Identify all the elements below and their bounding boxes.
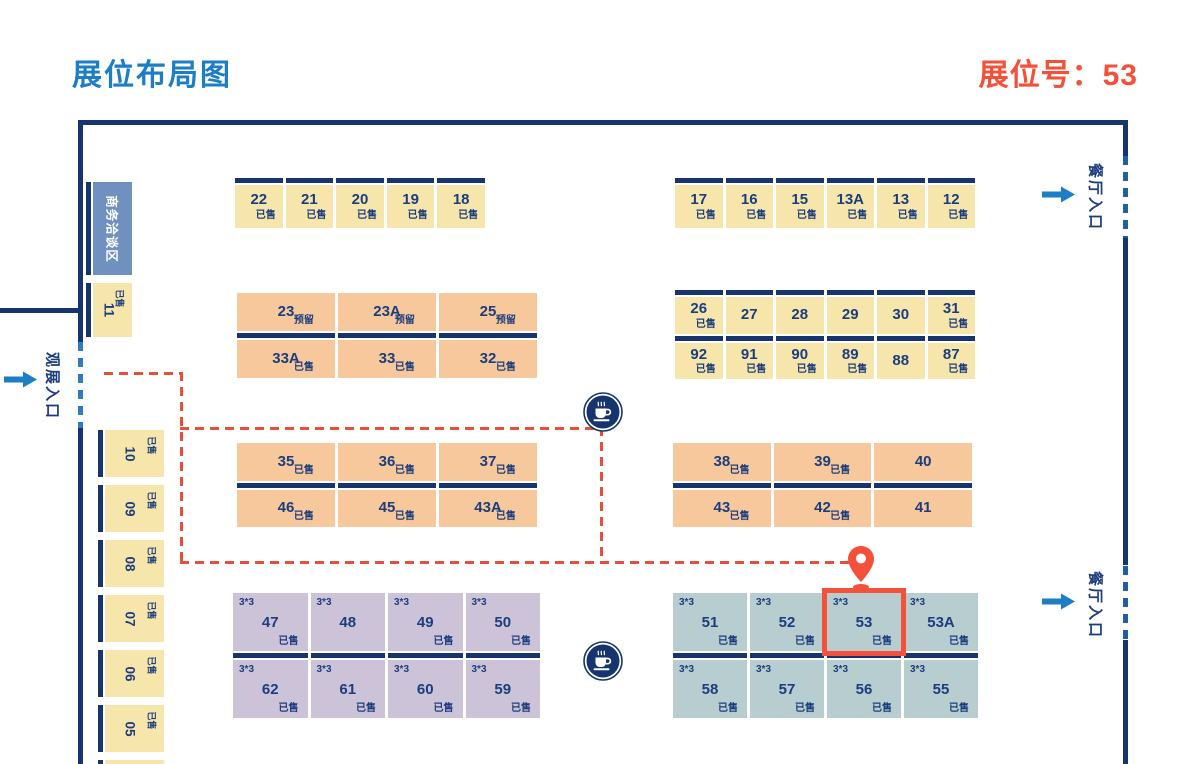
wall-segment (0, 308, 78, 313)
booth-number: 39 (814, 454, 831, 471)
booth-number: 48 (339, 615, 356, 632)
route-path-segment (600, 427, 603, 564)
booth-42[interactable]: 42已售 (774, 490, 872, 528)
booth-status: 已售 (948, 365, 968, 375)
booth-90[interactable]: 90已售 (776, 343, 824, 380)
booth-number: 09 (122, 501, 137, 516)
booth-column: 35已售46已售 (237, 443, 335, 527)
booth-number: 47 (262, 615, 279, 632)
booth-10[interactable]: 10已售 (98, 430, 164, 477)
booth-60[interactable]: 3*360已售 (388, 660, 463, 718)
booth-status: 已售 (395, 466, 415, 476)
booth-status: 已售 (718, 637, 738, 647)
booth-divider-bar (437, 178, 485, 183)
booth-status: 已售 (872, 637, 892, 647)
restaurant-entrance-top-label: 餐厅入口 (1080, 156, 1112, 238)
booth-number: 16 (741, 192, 758, 209)
booth-number: 27 (741, 307, 758, 324)
booth-30[interactable]: 30 (877, 297, 925, 334)
booth-status: 已售 (113, 289, 126, 307)
booth-status: 已售 (145, 491, 158, 509)
booth-number: 18 (453, 192, 470, 209)
booth-edge-bar (98, 485, 103, 532)
booth-49[interactable]: 3*349已售 (388, 593, 463, 651)
booth-36[interactable]: 36已售 (338, 443, 436, 481)
booth-column: 23预留33A已售 (237, 293, 335, 378)
booth-number: 40 (915, 454, 932, 471)
booth-divider-bar (726, 178, 774, 183)
booth-87[interactable]: 87已售 (928, 343, 976, 380)
wall-segment (1123, 120, 1128, 156)
booth-divider-bar (874, 483, 972, 488)
booth-status: 已售 (279, 637, 299, 647)
booth-status: 已售 (395, 363, 415, 373)
booth-column: 3*351已售3*358已售 (673, 593, 747, 718)
booth-16[interactable]: 16已售 (726, 185, 774, 228)
booth-column: 15已售 (776, 178, 824, 228)
booth-group-mid-left: 23预留33A已售23A预留33已售25预留32已售 (237, 293, 537, 378)
booth-size-label: 3*3 (239, 597, 254, 608)
booth-divider-bar (338, 483, 436, 488)
booth-divider-bar (827, 178, 875, 183)
booth-divider-bar (388, 653, 463, 658)
page-title: 展位布局图 (72, 50, 232, 94)
booth-status: 已售 (795, 704, 815, 714)
booth-status: 已售 (279, 704, 299, 714)
booth-32[interactable]: 32已售 (439, 340, 537, 378)
booth-column: 3*350已售3*359已售 (466, 593, 541, 718)
booth-divider-bar (776, 336, 824, 341)
booth-status: 已售 (847, 365, 867, 375)
booth-number: 07 (122, 611, 137, 626)
wall-segment (78, 428, 83, 764)
booth-46[interactable]: 46已售 (237, 490, 335, 528)
wall-segment (1123, 238, 1128, 565)
booth-column: 38已售43已售 (673, 443, 771, 527)
booth-number: 49 (417, 615, 434, 632)
booth-size-label: 3*3 (472, 664, 487, 675)
booth-number: 23 (278, 304, 295, 321)
booth-edge-bar (86, 283, 91, 337)
booth-column: 39已售42已售 (774, 443, 872, 527)
booth-status: 已售 (696, 365, 716, 375)
booth-37[interactable]: 37已售 (439, 443, 537, 481)
booth-status: 已售 (696, 211, 716, 221)
booth-25[interactable]: 25预留 (439, 293, 537, 331)
right-arrow-icon (4, 371, 38, 388)
selected-booth-label: 展位号：53 (979, 50, 1138, 94)
booth-size-label: 3*3 (317, 597, 332, 608)
booth-status: 已售 (294, 512, 314, 522)
booth-number: 37 (480, 454, 497, 471)
booth-column: 18已售 (437, 178, 485, 228)
booth-divider-bar (776, 290, 824, 295)
booth-status: 已售 (511, 704, 531, 714)
booth-41[interactable]: 41 (874, 490, 972, 528)
booth-58[interactable]: 3*358已售 (673, 660, 747, 718)
booth-status: 已售 (847, 211, 867, 221)
booth-number: 59 (494, 682, 511, 699)
booth-number: 12 (943, 192, 960, 209)
booth-38[interactable]: 38已售 (673, 443, 771, 481)
booth-number: 87 (943, 347, 960, 364)
booth-divider-bar (237, 483, 335, 488)
booth-column: 3*349已售3*360已售 (388, 593, 463, 718)
booth-status: 已售 (357, 211, 377, 221)
booth-column: 17已售 (675, 178, 723, 228)
booth-number: 45 (379, 500, 396, 517)
booth-number: 30 (892, 307, 909, 324)
route-path-segment (180, 427, 602, 430)
booth-column: 13已售 (877, 178, 925, 228)
booth-divider-bar (286, 178, 334, 183)
booth-89[interactable]: 89已售 (827, 343, 875, 380)
wall-segment (1123, 640, 1128, 764)
booth-status: 已售 (408, 211, 428, 221)
booth-number: 90 (791, 347, 808, 364)
booth-column: 2791已售 (726, 290, 774, 379)
booth-number: 29 (842, 307, 859, 324)
booth-number: 51 (702, 615, 719, 632)
booth-divider-bar (877, 336, 925, 341)
booth-number: 19 (402, 192, 419, 209)
entrance-gap-dashed (78, 342, 83, 428)
booth-size-label: 3*3 (317, 664, 332, 675)
booth-33A[interactable]: 33A已售 (237, 340, 335, 378)
booth-column: 3*347已售3*362已售 (233, 593, 308, 718)
booth-21[interactable]: 21已售 (286, 185, 334, 228)
booth-status: 已售 (496, 466, 516, 476)
booth-number: 50 (494, 615, 511, 632)
booth-09[interactable]: 09已售 (98, 485, 164, 532)
booth-52[interactable]: 3*352已售 (750, 593, 824, 651)
booth-48[interactable]: 3*348 (311, 593, 386, 651)
booth-status: 已售 (830, 466, 850, 476)
booth-column: 3*353A已售3*355已售 (904, 593, 978, 718)
booth-number: 46 (278, 500, 295, 517)
booth-45[interactable]: 45已售 (338, 490, 436, 528)
booth-size-label: 3*3 (910, 664, 925, 675)
negotiation-area-label: 商务洽谈区 (103, 195, 122, 263)
restaurant-entrance-bottom-label: 餐厅入口 (1080, 564, 1112, 646)
booth-divider-bar (750, 653, 824, 658)
booth-20[interactable]: 20已售 (336, 185, 384, 228)
booth-column: 31已售87已售 (928, 290, 976, 379)
booth-group-bottom-left: 3*347已售3*362已售3*3483*361已售3*349已售3*360已售… (233, 593, 540, 718)
booth-33[interactable]: 33已售 (338, 340, 436, 378)
booth-number: 36 (379, 454, 396, 471)
booth-divider-bar (726, 290, 774, 295)
booth-status: 已售 (898, 211, 918, 221)
booth-size-label: 3*3 (756, 664, 771, 675)
booth-divider-bar (673, 483, 771, 488)
booth-92[interactable]: 92已售 (675, 343, 723, 380)
booth-number: 88 (892, 353, 909, 370)
booth-edge-bar (98, 595, 103, 642)
booth-number: 89 (842, 347, 859, 364)
booth-61[interactable]: 3*361已售 (311, 660, 386, 718)
negotiation-area: 商务洽谈区 (86, 182, 132, 275)
booth-19[interactable]: 19已售 (387, 185, 435, 228)
booth-A[interactable]: A已售 (98, 760, 164, 764)
booth-56[interactable]: 3*356已售 (827, 660, 901, 718)
booth-27[interactable]: 27 (726, 297, 774, 334)
booth-47[interactable]: 3*347已售 (233, 593, 308, 651)
visitor-entrance-label: 观展入口 (36, 344, 70, 428)
booth-number: 43 (713, 500, 730, 517)
booth-status: 预留 (496, 316, 516, 326)
booth-status: 已售 (696, 320, 716, 330)
booth-column: 2890已售 (776, 290, 824, 379)
left-booth-strip: 10已售09已售08已售07已售06已售05已售A已售 (98, 430, 164, 764)
booth-53[interactable]: 3*353已售 (827, 593, 901, 651)
booth-divider-bar (311, 653, 386, 658)
booth-43[interactable]: 43已售 (673, 490, 771, 528)
booth-column: 13A已售 (827, 178, 875, 228)
booth-column: 26已售92已售 (675, 290, 723, 379)
booth-size-label: 3*3 (756, 597, 771, 608)
booth-number: 13 (892, 192, 909, 209)
booth-15[interactable]: 15已售 (776, 185, 824, 228)
booth-size-label: 3*3 (472, 597, 487, 608)
booth-number: 57 (779, 682, 796, 699)
booth-number: 32 (480, 351, 497, 368)
coffee-cup-icon (583, 641, 623, 681)
booth-number: 42 (814, 500, 831, 517)
booth-number: 06 (122, 666, 137, 681)
booth-05[interactable]: 05已售 (98, 705, 164, 752)
booth-edge-bar (98, 760, 103, 764)
booth-26[interactable]: 26已售 (675, 297, 723, 334)
booth-size-label: 3*3 (394, 597, 409, 608)
booth-body: 07已售 (105, 595, 164, 642)
booth-divider-bar (675, 178, 723, 183)
booth-43A[interactable]: 43A已售 (439, 490, 537, 528)
booth-column: 23A预留33已售 (338, 293, 436, 378)
booth-62[interactable]: 3*362已售 (233, 660, 308, 718)
booth-column: 12已售 (928, 178, 976, 228)
right-arrow-icon (1042, 593, 1076, 610)
entrance-gap-dashed (1123, 566, 1128, 640)
booth-divider-bar (675, 336, 723, 341)
booth-number: 20 (352, 192, 369, 209)
booth-status: 已售 (145, 656, 158, 674)
booth-body: 05已售 (105, 705, 164, 752)
booth-divider-bar (387, 178, 435, 183)
booth-divider-bar (675, 290, 723, 295)
booth-number: 28 (791, 307, 808, 324)
booth-29[interactable]: 29 (827, 297, 875, 334)
booth-edge-bar (98, 650, 103, 697)
booth-number: 15 (791, 192, 808, 209)
booth-23[interactable]: 23预留 (237, 293, 335, 331)
booth-number: 31 (943, 301, 960, 318)
booth-number: 55 (933, 682, 950, 699)
booth-number: 33 (379, 351, 396, 368)
booth-status: 已售 (746, 365, 766, 375)
booth-status: 已售 (434, 637, 454, 647)
booth-size-label: 3*3 (679, 597, 694, 608)
booth-12[interactable]: 12已售 (928, 185, 976, 228)
booth-divider-bar (233, 653, 308, 658)
booth-number: 21 (301, 192, 318, 209)
booth-number: 62 (262, 682, 279, 699)
booth-group-mid-right: 26已售92已售2791已售2890已售2989已售308831已售87已售 (675, 290, 975, 379)
pin-shadow-dot (853, 584, 869, 590)
booth-divider-bar (466, 653, 541, 658)
booth-number: 25 (480, 304, 497, 321)
booth-group-top-right: 17已售16已售15已售13A已售13已售12已售 (675, 178, 975, 228)
booth-06[interactable]: 06已售 (98, 650, 164, 697)
booth-status: 已售 (294, 466, 314, 476)
booth-number: 61 (339, 682, 356, 699)
booth-number: 92 (690, 347, 707, 364)
route-path-segment (104, 372, 182, 375)
route-path-segment (180, 561, 850, 564)
booth-status: 已售 (730, 512, 750, 522)
booth-07[interactable]: 07已售 (98, 595, 164, 642)
booth-13A[interactable]: 13A已售 (827, 185, 875, 228)
booth-divider-bar (827, 336, 875, 341)
booth-88[interactable]: 88 (877, 343, 925, 380)
booth-divider-bar (928, 336, 976, 341)
booth-divider-bar (928, 290, 976, 295)
booth-divider-bar (673, 653, 747, 658)
booth-column: 2989已售 (827, 290, 875, 379)
wall-segment (78, 120, 83, 342)
booth-size-label: 3*3 (833, 664, 848, 675)
booth-status: 已售 (830, 512, 850, 522)
booth-status: 已售 (395, 512, 415, 522)
booth-status: 已售 (511, 637, 531, 647)
booth-size-label: 3*3 (833, 597, 848, 608)
booth-status: 已售 (434, 704, 454, 714)
booth-number: 10 (122, 446, 137, 461)
booth-column: 20已售 (336, 178, 384, 228)
booth-divider-bar (904, 653, 978, 658)
booth-35[interactable]: 35已售 (237, 443, 335, 481)
booth-status: 已售 (718, 704, 738, 714)
booth-group-bottom-right: 3*351已售3*358已售3*352已售3*357已售3*353已售3*356… (673, 593, 978, 718)
booth-size-label: 3*3 (394, 664, 409, 675)
booth-number: 53A (927, 615, 955, 632)
booth-53A[interactable]: 3*353A已售 (904, 593, 978, 651)
booth-edge-bar (98, 430, 103, 477)
booth-status: 已售 (948, 211, 968, 221)
booth-body: 09已售 (105, 485, 164, 532)
booth-divider-bar (776, 178, 824, 183)
booth-divider-bar (827, 290, 875, 295)
booth-column: 19已售 (387, 178, 435, 228)
booth-column: 36已售45已售 (338, 443, 436, 527)
booth-size-label: 3*3 (910, 597, 925, 608)
booth-18[interactable]: 18已售 (437, 185, 485, 228)
booth-39[interactable]: 39已售 (774, 443, 872, 481)
booth-divider-bar (827, 653, 901, 658)
booth-status: 已售 (949, 637, 969, 647)
booth-number: 60 (417, 682, 434, 699)
booth-status: 已售 (306, 211, 326, 221)
booth-divider-bar (877, 290, 925, 295)
booth-31[interactable]: 31已售 (928, 297, 976, 334)
booth-status: 已售 (746, 211, 766, 221)
entrance-gap-dashed (1123, 156, 1128, 238)
booth-50[interactable]: 3*350已售 (466, 593, 541, 651)
booth-number: 38 (713, 454, 730, 471)
booth-divider-bar (237, 333, 335, 338)
booth-51[interactable]: 3*351已售 (673, 593, 747, 651)
booth-55[interactable]: 3*355已售 (904, 660, 978, 718)
booth-number: 13A (836, 192, 864, 209)
booth-column: 22已售 (235, 178, 283, 228)
booth-28[interactable]: 28 (776, 297, 824, 334)
booth-divider-bar (336, 178, 384, 183)
booth-status: 已售 (797, 211, 817, 221)
booth-status: 已售 (458, 211, 478, 221)
booth-23A[interactable]: 23A预留 (338, 293, 436, 331)
booth-status: 已售 (256, 211, 276, 221)
booth-column: 3*352已售3*357已售 (750, 593, 824, 718)
booth-body: A已售 (105, 760, 164, 764)
booth-status: 预留 (294, 316, 314, 326)
booth-08[interactable]: 08已售 (98, 540, 164, 587)
booth-59[interactable]: 3*359已售 (466, 660, 541, 718)
booth-edge-bar (86, 182, 91, 275)
booth-divider-bar (774, 483, 872, 488)
booth-number: 53 (856, 615, 873, 632)
booth-status: 已售 (949, 704, 969, 714)
booth-body: 10已售 (105, 430, 164, 477)
booth-body: 08已售 (105, 540, 164, 587)
booth-divider-bar (726, 336, 774, 341)
coffee-cup-icon (583, 392, 623, 432)
booth-status: 已售 (948, 320, 968, 330)
booth-column: 4041 (874, 443, 972, 527)
booth-column: 16已售 (726, 178, 774, 228)
booth-divider-bar (439, 483, 537, 488)
booth-edge-bar (98, 540, 103, 587)
booth-number: 05 (122, 721, 137, 736)
wall-segment (78, 120, 1128, 125)
booth-40[interactable]: 40 (874, 443, 972, 481)
booth-size-label: 3*3 (239, 664, 254, 675)
booth-status: 预留 (395, 316, 415, 326)
right-arrow-icon (1042, 186, 1076, 203)
booth-number: 35 (278, 454, 295, 471)
booth-status: 已售 (294, 363, 314, 373)
booth-status: 已售 (145, 546, 158, 564)
booth-divider-bar (928, 178, 976, 183)
booth-13[interactable]: 13已售 (877, 185, 925, 228)
floor-plan-canvas: 展位布局图 展位号：53 观展入口 餐厅入口 餐厅入口 商务洽谈区 11 已售 … (0, 0, 1204, 764)
booth-status: 已售 (356, 704, 376, 714)
booth-number: 56 (856, 682, 873, 699)
booth-size-label: 3*3 (679, 664, 694, 675)
booth-column: 25预留32已售 (439, 293, 537, 378)
booth-91[interactable]: 91已售 (726, 343, 774, 380)
booth-number: 58 (702, 682, 719, 699)
booth-group-top-left: 22已售21已售20已售19已售18已售 (235, 178, 485, 228)
booth-22[interactable]: 22已售 (235, 185, 283, 228)
booth-status: 已售 (496, 512, 516, 522)
booth-57[interactable]: 3*357已售 (750, 660, 824, 718)
booth-11[interactable]: 11 已售 (86, 283, 132, 337)
booth-status: 已售 (145, 601, 158, 619)
booth-17[interactable]: 17已售 (675, 185, 723, 228)
route-path-segment (180, 372, 183, 564)
booth-status: 已售 (795, 637, 815, 647)
booth-column: 3*3483*361已售 (311, 593, 386, 718)
